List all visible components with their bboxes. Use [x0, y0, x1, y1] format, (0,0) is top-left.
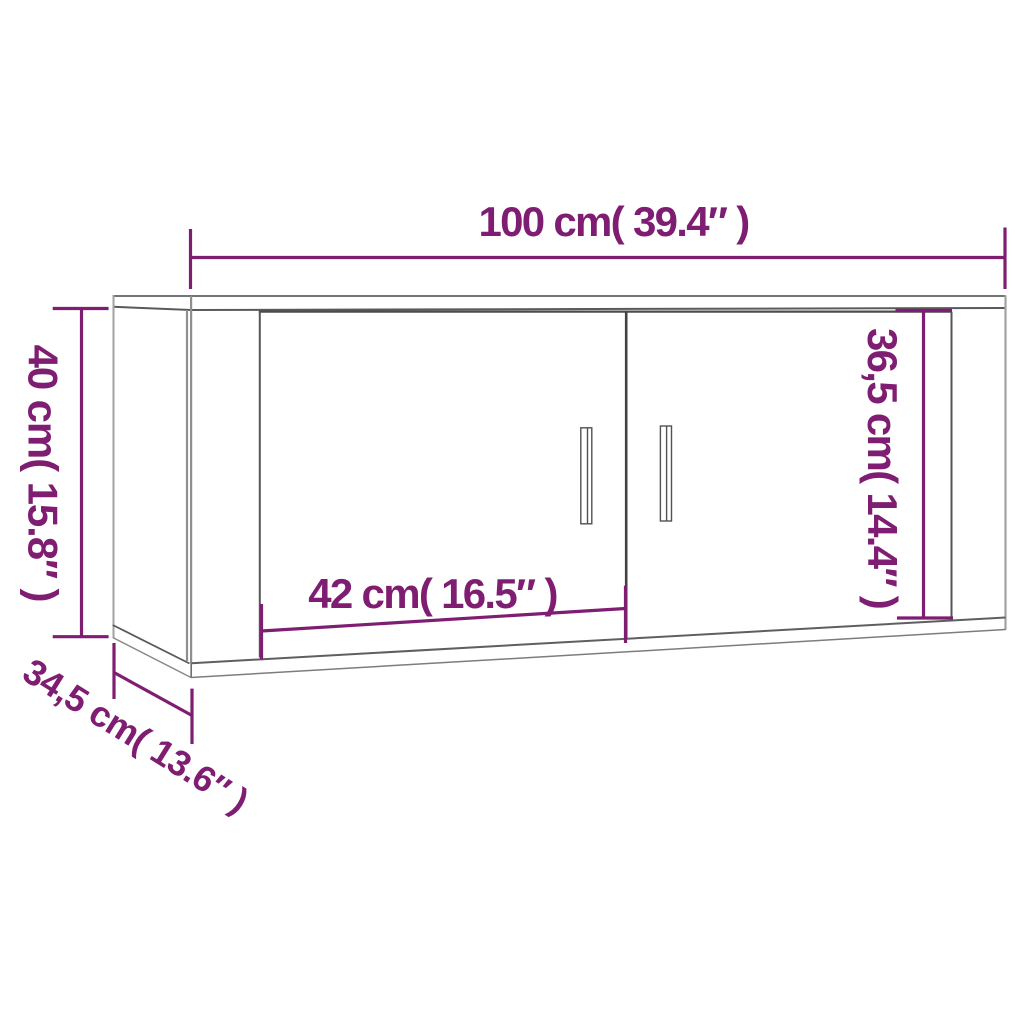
svg-text:100 cm( 39.4″ ): 100 cm( 39.4″ ): [478, 198, 748, 245]
svg-text:36,5 cm( 14.4″ ): 36,5 cm( 14.4″ ): [859, 328, 906, 608]
svg-text:42 cm( 16.5″ ): 42 cm( 16.5″ ): [308, 570, 556, 617]
svg-text:40 cm( 15.8″ ): 40 cm( 15.8″ ): [20, 345, 67, 602]
